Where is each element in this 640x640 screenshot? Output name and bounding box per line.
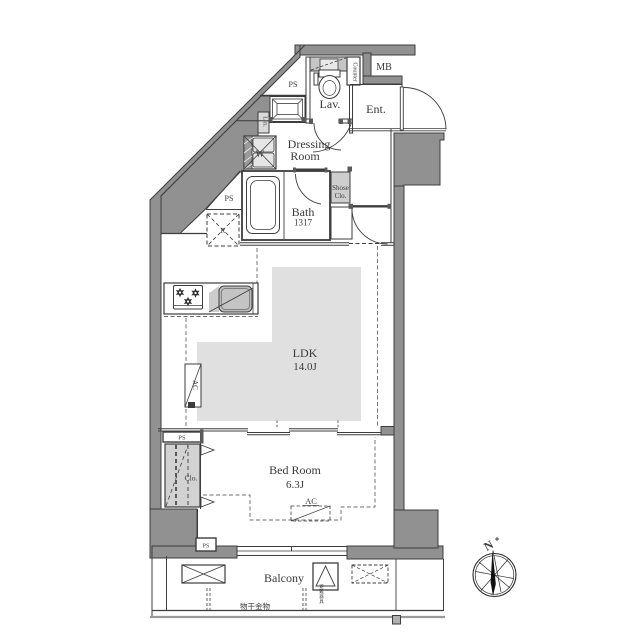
svg-text:Lin.: Lin.: [262, 116, 269, 127]
svg-text:物干金物: 物干金物: [240, 601, 270, 611]
svg-text:PS: PS: [289, 80, 298, 89]
svg-text:AC: AC: [305, 496, 317, 506]
svg-text:Room: Room: [290, 149, 320, 163]
svg-text:Clo.: Clo.: [335, 192, 347, 200]
svg-text:14.0J: 14.0J: [293, 361, 317, 373]
svg-text:Ent.: Ent.: [366, 102, 386, 116]
svg-text:6.3J: 6.3J: [286, 479, 305, 491]
svg-text:Bed Room: Bed Room: [269, 463, 321, 477]
svg-text:Counter: Counter: [352, 62, 358, 81]
svg-text:LDK: LDK: [293, 346, 318, 360]
svg-text:PS: PS: [203, 544, 210, 550]
svg-text:Shose: Shose: [332, 184, 349, 192]
svg-text:PS: PS: [225, 194, 234, 203]
svg-text:W: W: [256, 149, 265, 159]
svg-text:PS: PS: [178, 435, 186, 442]
svg-text:AC: AC: [191, 380, 199, 390]
svg-text:Clo.: Clo.: [185, 474, 198, 483]
svg-text:1317: 1317: [294, 218, 313, 228]
svg-text:Lav.: Lav.: [320, 97, 341, 111]
svg-text:Balcony: Balcony: [264, 571, 304, 585]
svg-text:R: R: [221, 227, 226, 235]
svg-text:MB: MB: [376, 62, 392, 73]
